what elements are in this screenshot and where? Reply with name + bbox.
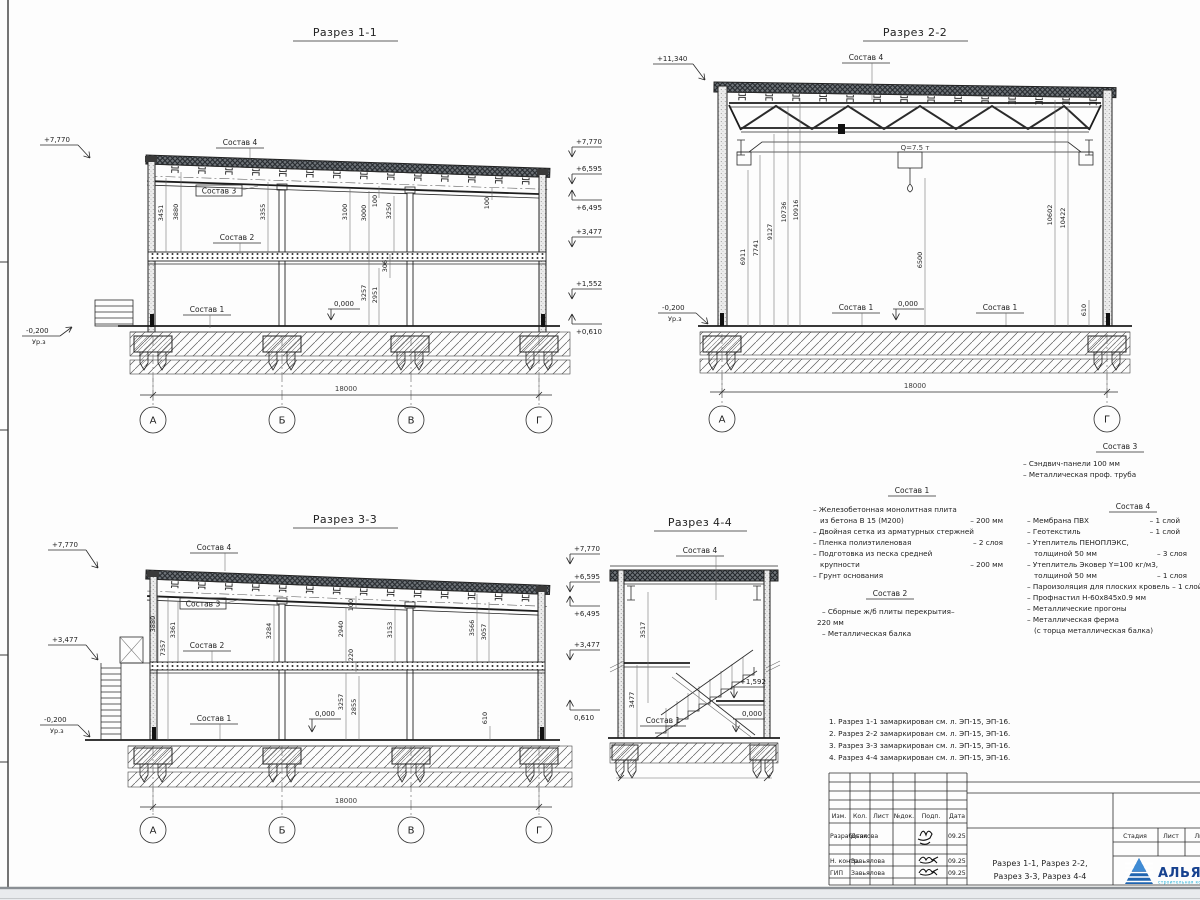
doc-title-line1: Разрез 1-1, Разрез 2-2,: [992, 859, 1087, 868]
axis-bubble-b: Б: [279, 416, 286, 427]
roof-band: [610, 570, 778, 581]
axis-bubble-g: Г: [1104, 415, 1110, 426]
soil-band-2: [130, 360, 570, 374]
svg-text:– Металлическая ферма: – Металлическая ферма: [1027, 615, 1119, 624]
svg-text:3451: 3451: [157, 205, 165, 222]
svg-text:+3,477: +3,477: [574, 641, 600, 649]
svg-text:-0,200: -0,200: [44, 716, 67, 724]
svg-text:– 1 слой: – 1 слой: [1150, 527, 1181, 536]
svg-text:3361: 3361: [169, 622, 177, 639]
column-v: [407, 608, 413, 740]
axis-bubble-a: А: [719, 415, 726, 426]
svg-text:0,610: 0,610: [574, 714, 594, 722]
svg-text:220 мм: 220 мм: [817, 618, 844, 627]
col-list: Лист: [873, 813, 889, 820]
name-ncontrol: Завьялова: [851, 858, 885, 865]
wall-left: [148, 160, 155, 332]
svg-text:10422: 10422: [1059, 208, 1067, 229]
svg-text:220: 220: [347, 649, 355, 661]
comp2-title: Состав 2: [873, 589, 908, 598]
section-3-3-title: Разрез 3-3: [313, 513, 377, 526]
role-gip: ГИП: [830, 870, 843, 877]
label-sostav4: Состав 4: [683, 546, 718, 555]
label-sostav3: Состав 3: [186, 600, 221, 609]
svg-text:610: 610: [481, 712, 489, 724]
comp1-title: Состав 1: [895, 486, 930, 495]
name-developer: Дьякова: [851, 833, 878, 840]
svg-text:из бетона В 15 (М200): из бетона В 15 (М200): [820, 516, 904, 525]
svg-text:3250: 3250: [385, 203, 393, 220]
svg-text:0,000: 0,000: [898, 300, 918, 308]
svg-text:3257: 3257: [360, 285, 368, 302]
section-4-4-title: Разрез 4-4: [668, 516, 732, 529]
svg-text:Ур.з: Ур.з: [32, 338, 46, 346]
wall-right: [764, 570, 770, 738]
date-ncontrol: 09.25: [948, 858, 966, 865]
svg-text:– Утеплитель ПЕНОПЛЭКС,: – Утеплитель ПЕНОПЛЭКС,: [1027, 538, 1129, 547]
name-gip: Завьялова: [851, 870, 885, 877]
svg-text:3153: 3153: [386, 622, 394, 639]
comp4-title: Состав 4: [1116, 502, 1151, 511]
svg-text:10602: 10602: [1046, 205, 1054, 226]
svg-text:3517: 3517: [639, 622, 647, 639]
svg-text:+6,595: +6,595: [576, 165, 602, 173]
svg-text:3100: 3100: [341, 204, 349, 221]
svg-text:3257: 3257: [337, 694, 345, 711]
svg-text:– Пароизоляция для плоских кро: – Пароизоляция для плоских кровель – 1 с…: [1027, 582, 1200, 591]
svg-text:306: 306: [381, 260, 389, 272]
note-4: 4. Разрез 4-4 замаркирован см. л. ЭП-15,…: [829, 753, 1010, 762]
label-sostav1: Состав 1: [839, 303, 874, 312]
svg-text:– Профнастил Н-60х845х0.9 мм: – Профнастил Н-60х845х0.9 мм: [1027, 593, 1146, 602]
drawing-sheet: Разрез 1-1 Состав 4: [0, 0, 1200, 900]
label-sostav1: Состав 1: [646, 716, 681, 725]
svg-text:– 200 мм: – 200 мм: [970, 516, 1003, 525]
label-sostav2: Состав 2: [190, 641, 225, 650]
col-data: Дата: [949, 813, 965, 820]
svg-text:610: 610: [1080, 304, 1088, 316]
svg-text:крупности: крупности: [820, 560, 860, 569]
col-stage: Стадия: [1123, 833, 1147, 840]
logo-text: АЛЬЯНС: [1158, 866, 1200, 881]
label-sostav3: Состав 3: [202, 187, 237, 196]
svg-text:-0,200: -0,200: [26, 327, 49, 335]
col-ndok: №док.: [893, 813, 914, 820]
svg-text:18000: 18000: [904, 382, 926, 390]
col-sheets: Листов: [1194, 833, 1200, 840]
svg-text:+7,770: +7,770: [574, 545, 600, 553]
svg-text:– Сэндвич-панели 100 мм: – Сэндвич-панели 100 мм: [1023, 459, 1120, 468]
svg-text:+6,495: +6,495: [576, 204, 602, 212]
svg-text:10736: 10736: [780, 202, 788, 223]
svg-text:18000: 18000: [335, 797, 357, 805]
label-sostav1: Состав 1: [197, 714, 232, 723]
svg-text:(с торца металлическая балка): (с торца металлическая балка): [1034, 626, 1153, 635]
svg-text:+1,552: +1,552: [576, 280, 602, 288]
crane-capacity: Q=7.5 т: [901, 144, 930, 152]
svg-text:100: 100: [347, 599, 355, 611]
svg-text:+3,477: +3,477: [576, 228, 602, 236]
section-1-1-title: Разрез 1-1: [313, 26, 377, 39]
svg-text:– Железобетонная монолитная п: – Железобетонная монолитная плита: [813, 505, 957, 514]
svg-text:– 200 мм: – 200 мм: [970, 560, 1003, 569]
svg-text:– Металлические прогоны: – Металлические прогоны: [1027, 604, 1127, 613]
col-podp: Подп.: [922, 813, 941, 820]
section-2-2-title: Разрез 2-2: [883, 26, 947, 39]
label-sostav2: Состав 2: [220, 233, 255, 242]
svg-text:толщиной 50 мм: толщиной 50 мм: [1034, 571, 1097, 580]
column-b: [279, 604, 285, 740]
axis-bubble-g: Г: [536, 416, 542, 427]
soil-band-1: [130, 332, 570, 356]
svg-text:100: 100: [483, 197, 491, 209]
svg-text:3355: 3355: [259, 204, 267, 221]
note-3: 3. Разрез 3-3 замаркирован см. л. ЭП-15,…: [829, 741, 1010, 750]
label-sostav4: Состав 4: [849, 53, 884, 62]
svg-text:2951: 2951: [371, 287, 379, 304]
svg-text:+6,595: +6,595: [574, 573, 600, 581]
svg-text:+11,340: +11,340: [657, 55, 687, 63]
svg-text:100: 100: [371, 195, 379, 207]
svg-text:-0,200: -0,200: [662, 304, 685, 312]
svg-text:3880: 3880: [149, 616, 157, 633]
svg-text:– 3 слоя: – 3 слоя: [1157, 549, 1187, 558]
svg-text:Ур.з: Ур.з: [50, 727, 64, 735]
svg-text:6911: 6911: [739, 249, 747, 266]
svg-text:3057: 3057: [480, 624, 488, 641]
axis-bubble-b: Б: [279, 826, 286, 837]
axis-bubble-v: В: [408, 416, 415, 427]
wall-left: [618, 570, 624, 738]
zero-mark: 0,000: [334, 300, 354, 308]
svg-text:3284: 3284: [265, 623, 273, 640]
svg-text:– 2 слоя: – 2 слоя: [973, 538, 1003, 547]
axis-bubble-a: А: [150, 826, 157, 837]
svg-text:3000: 3000: [360, 205, 368, 222]
axis-bubble-g: Г: [536, 826, 542, 837]
wall-right: [1103, 90, 1112, 326]
svg-text:– 1 слоя: – 1 слоя: [1157, 571, 1187, 580]
label-sostav4: Состав 4: [223, 138, 258, 147]
svg-text:0,000: 0,000: [742, 710, 762, 718]
svg-text:– Грунт основания: – Грунт основания: [813, 571, 883, 580]
note-1: 1. Разрез 1-1 замаркирован см. л. ЭП-15,…: [829, 717, 1010, 726]
svg-text:– Двойная сетка из арматурных: – Двойная сетка из арматурных стержней: [813, 527, 974, 536]
svg-text:7741: 7741: [752, 240, 760, 257]
note-2: 2. Разрез 2-2 замаркирован см. л. ЭП-15,…: [829, 729, 1010, 738]
doc-title-line2: Разрез 3-3, Разрез 4-4: [994, 872, 1087, 881]
col-kol: Кол.: [853, 813, 867, 820]
floor-slab-band: [148, 252, 546, 261]
wall-left: [718, 86, 727, 326]
svg-text:7357: 7357: [159, 640, 167, 657]
svg-text:+7,770: +7,770: [44, 136, 70, 144]
svg-text:– Утеплитель Эковер Y=100 кг/м: – Утеплитель Эковер Y=100 кг/м3,: [1027, 560, 1158, 569]
svg-text:– Геотекстиль: – Геотекстиль: [1027, 527, 1081, 536]
svg-text:– 1 слой: – 1 слой: [1150, 516, 1181, 525]
label-sostav1: Состав 1: [190, 305, 225, 314]
svg-text:3880: 3880: [172, 204, 180, 221]
svg-text:3566: 3566: [468, 620, 476, 637]
svg-text:+3,477: +3,477: [52, 636, 78, 644]
svg-text:+7,770: +7,770: [52, 541, 78, 549]
svg-text:2940: 2940: [337, 621, 345, 638]
logo-subtitle: строительная компания: [1158, 881, 1200, 886]
svg-text:– Пленка полиэтиленовая: – Пленка полиэтиленовая: [813, 538, 911, 547]
svg-text:толщиной 50 мм: толщиной 50 мм: [1034, 549, 1097, 558]
svg-text:– Подготовка из песка средней: – Подготовка из песка средней: [813, 549, 933, 558]
svg-text:+7,770: +7,770: [576, 138, 602, 146]
wall-left: [150, 575, 157, 740]
svg-text:0,000: 0,000: [315, 710, 335, 718]
svg-text:+0,610: +0,610: [576, 328, 602, 336]
svg-text:– Сборные ж/б плиты перекрытия: – Сборные ж/б плиты перекрытия–: [822, 607, 955, 616]
label-sostav1: Состав 1: [983, 303, 1018, 312]
axis-bubble-a: А: [150, 416, 157, 427]
label-sostav4: Состав 4: [197, 543, 232, 552]
comp3-title: Состав 3: [1103, 442, 1138, 451]
svg-text:– Металлическая проф. труба: – Металлическая проф. труба: [1023, 470, 1136, 479]
floor-slab-band: [150, 662, 545, 670]
svg-text:+1,592: +1,592: [740, 678, 766, 686]
axis-bubble-v: В: [408, 826, 415, 837]
svg-text:3477: 3477: [628, 692, 636, 709]
date-gip: 09.25: [948, 870, 966, 877]
svg-text:2855: 2855: [350, 699, 358, 716]
svg-text:6500: 6500: [916, 252, 924, 269]
svg-text:10916: 10916: [792, 200, 800, 221]
col-sheet: Лист: [1163, 833, 1179, 840]
col-izm: Изм.: [832, 813, 847, 820]
span-dim: 18000: [335, 385, 357, 393]
svg-text:– Мембрана ПВХ: – Мембрана ПВХ: [1027, 516, 1089, 525]
date-developer: 09.25: [948, 833, 966, 840]
svg-text:Ур.з: Ур.з: [668, 315, 682, 323]
svg-text:9127: 9127: [766, 224, 774, 241]
svg-text:– Металлическая балка: – Металлическая балка: [822, 629, 911, 638]
svg-text:+6,495: +6,495: [574, 610, 600, 618]
